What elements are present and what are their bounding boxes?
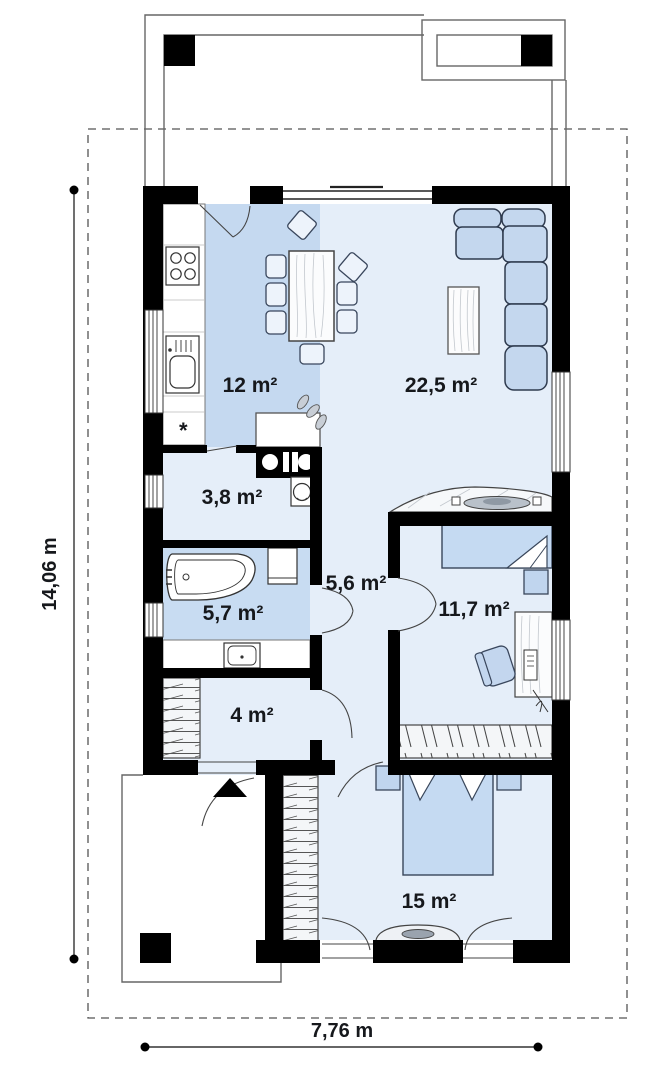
window-top <box>283 187 432 199</box>
window-living <box>552 372 570 472</box>
stove-icon <box>166 247 199 285</box>
nightstand-icon <box>524 570 548 594</box>
coffee-table-icon <box>448 287 479 354</box>
desk-icon <box>515 612 552 712</box>
window-office <box>552 620 570 700</box>
room-label-living: 22,5 m² <box>405 374 477 397</box>
kitchen-counter <box>163 204 205 445</box>
window-kitchen <box>145 310 163 413</box>
floor-plan-drawing: * <box>0 0 655 1089</box>
kitchen-sink-icon <box>166 336 199 393</box>
single-bed-icon <box>442 522 552 568</box>
room-label-entry: 4 m² <box>230 704 273 727</box>
floor-plan-page: * <box>0 0 655 1089</box>
room-label-bathroom: 5,7 m² <box>203 602 264 625</box>
office-wardrobe-icon <box>398 725 552 758</box>
bath-cabinet-icon <box>268 548 297 584</box>
room-label-office: 11,7 m² <box>438 598 509 621</box>
terrace-outline <box>145 15 566 186</box>
bedroom-wardrobe-icon <box>283 775 318 943</box>
entry-wardrobe-icon <box>163 678 200 758</box>
double-bed-icon <box>403 762 493 875</box>
dimension-width: 7,76 m <box>141 1020 543 1052</box>
dimension-width-label: 7,76 m <box>311 1020 373 1042</box>
dining-table-icon <box>289 251 334 341</box>
kitchen-island <box>256 413 320 447</box>
room-label-bedroom: 15 m² <box>402 890 457 913</box>
kitchen-note: * <box>179 418 188 443</box>
dimension-height: 14,06 m <box>39 186 79 964</box>
dimension-height-label: 14,06 m <box>39 537 61 610</box>
room-label-utility: 3,8 m² <box>202 486 263 509</box>
vanity-sink-icon <box>163 640 310 670</box>
window-bathroom <box>145 603 163 637</box>
room-label-kitchen: 12 m² <box>223 374 278 397</box>
window-utility <box>145 475 163 508</box>
room-label-hall: 5,6 m² <box>326 572 387 595</box>
